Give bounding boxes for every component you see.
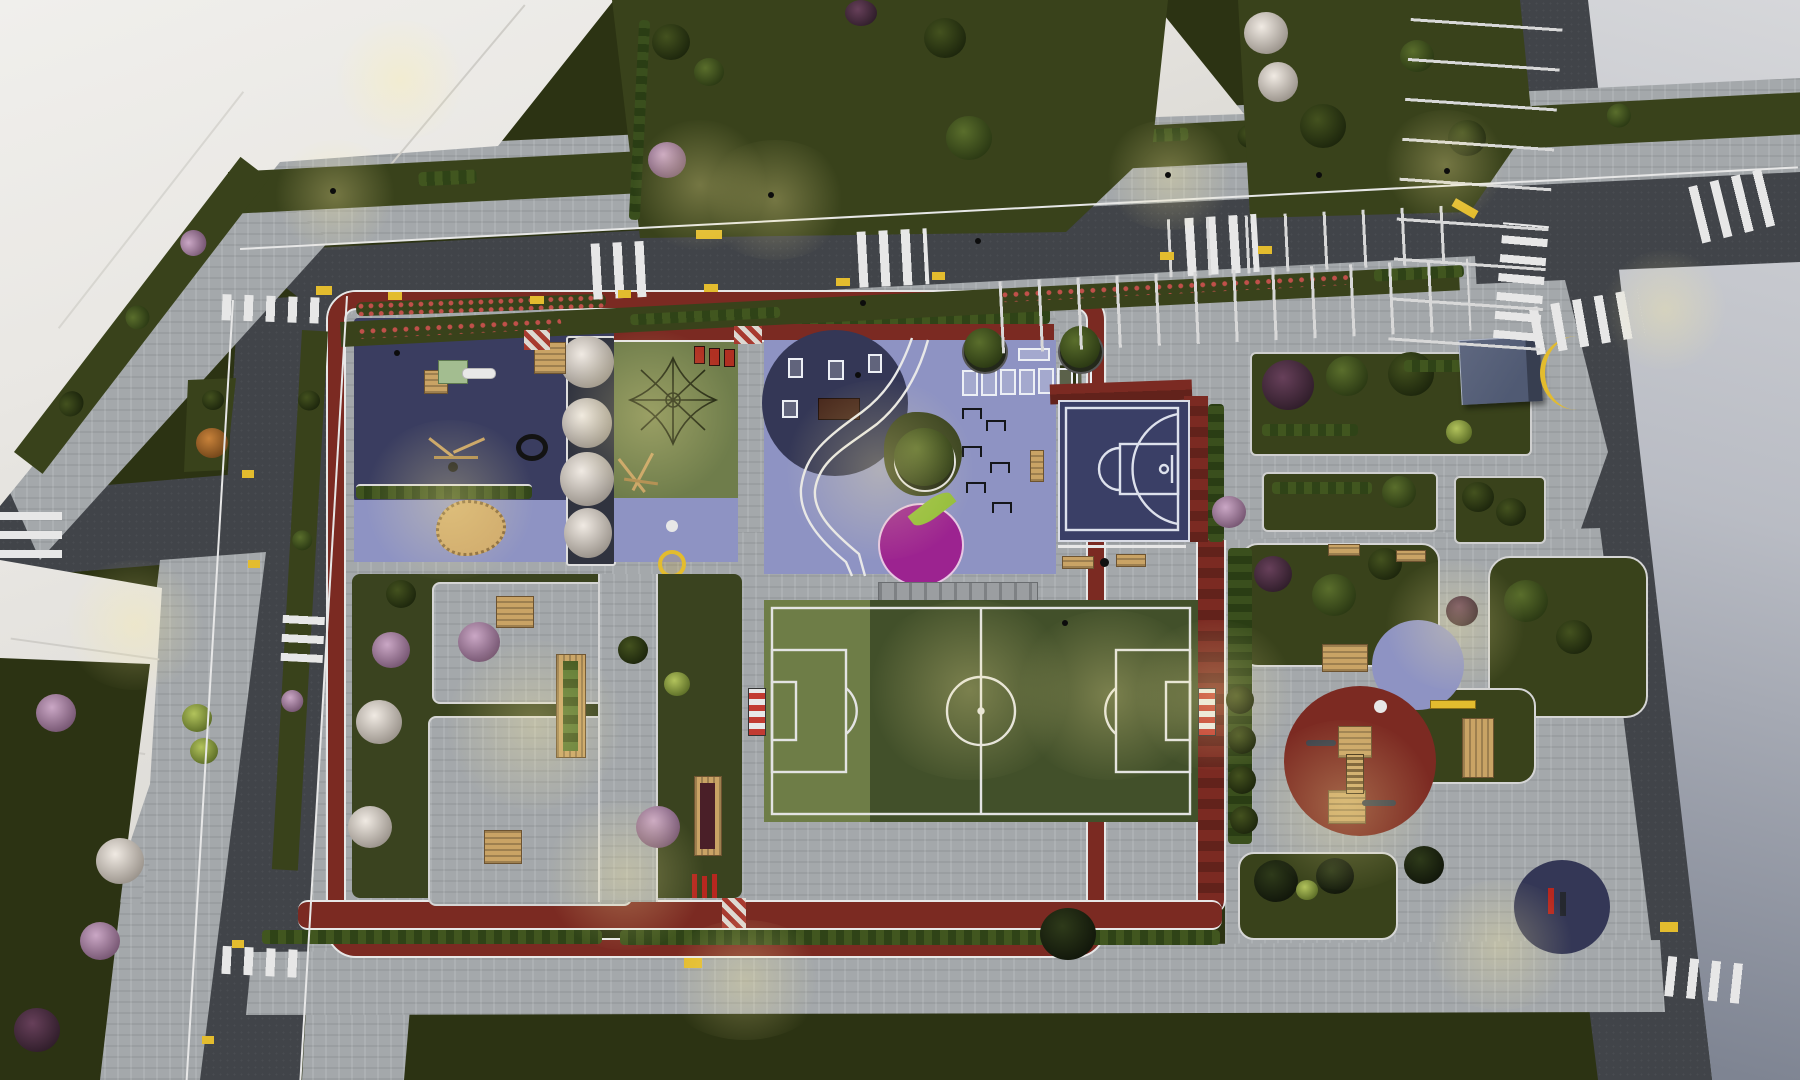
balance-beam [1430, 700, 1476, 709]
street-lamp [975, 238, 981, 244]
gym-platform [818, 398, 860, 420]
courtyard-tree [946, 116, 992, 160]
raised-planter-dark [694, 776, 722, 856]
play-ball [666, 520, 678, 532]
play-tower [1328, 790, 1366, 824]
street-lamp [1165, 172, 1171, 178]
lit-bush [1296, 880, 1318, 900]
blossom-tree [562, 398, 612, 448]
yellow-mark [1258, 246, 1272, 254]
blossom-tree [96, 838, 144, 884]
garden-tree [1504, 580, 1548, 622]
bed-tree [1496, 498, 1526, 526]
blossom-tree [1244, 12, 1288, 54]
purple-shrub [1254, 556, 1292, 592]
crosswalk [0, 502, 62, 558]
garden-path-east [598, 574, 658, 902]
court-south-line [1058, 545, 1186, 548]
ball-tree [1230, 806, 1258, 834]
pergola-table [1322, 644, 1368, 672]
basketball-half-court [1058, 400, 1190, 542]
soccer-field-light-strip [764, 600, 870, 822]
street-tree [964, 328, 1004, 368]
courtyard-tree [924, 18, 966, 58]
play-beam [1362, 800, 1396, 806]
yellow-mark [388, 292, 402, 300]
yellow-mark [1660, 922, 1678, 932]
picnic-table [496, 596, 534, 628]
rope-bridge [1346, 754, 1364, 794]
gym-machine [782, 400, 798, 418]
hurdle [962, 408, 982, 419]
wood-climber [614, 450, 662, 514]
track-crossing-mark [734, 326, 762, 344]
ball-tree [1228, 766, 1256, 794]
park-lamp [394, 350, 400, 356]
playground-hedge-strip [356, 484, 532, 499]
crosswalk [1664, 956, 1746, 1004]
courtyard-tree [694, 58, 724, 86]
bed-hedge [1262, 424, 1358, 436]
track-crossing-mark [722, 898, 746, 928]
swing-frame [426, 442, 484, 478]
street-lamp [330, 188, 336, 194]
crosswalk [221, 946, 306, 978]
yellow-mark [932, 272, 945, 280]
field-south-hedge [620, 930, 1220, 945]
garden-tree [1312, 574, 1356, 616]
ball-tree [1228, 726, 1256, 754]
hurdle [986, 420, 1006, 431]
dark-tree [1254, 860, 1298, 902]
yellow-mark [704, 284, 718, 292]
blossom-tree [560, 452, 614, 506]
crosswalk [281, 605, 326, 663]
yellow-mark [696, 230, 722, 239]
bed-tree [1462, 482, 1494, 512]
garden-tree [1556, 620, 1592, 654]
flowering-shrub [348, 806, 392, 848]
flowering-shrub [80, 922, 120, 960]
soccer-goal-west [748, 688, 766, 736]
blossom-tree [564, 508, 612, 558]
courtyard-tree [652, 24, 690, 60]
flowering-shrub [636, 806, 680, 848]
outdoor-gym-red [694, 344, 738, 368]
yellow-mark [684, 958, 702, 968]
aerial-park-render [0, 0, 1800, 1080]
ball-tree [1226, 686, 1254, 714]
bench [1116, 554, 1146, 567]
street-lamp [1444, 168, 1450, 174]
gym-machine [788, 358, 803, 378]
play-ball [1374, 700, 1387, 713]
courtyard-shrub [648, 142, 686, 178]
yellow-mark [836, 278, 850, 286]
yellow-mark [232, 940, 244, 948]
bed-hedge [1272, 482, 1372, 494]
bed-tree [1326, 356, 1368, 396]
purple-shrub [14, 1008, 60, 1052]
bench [1062, 556, 1094, 569]
tire-toy [516, 434, 548, 461]
park-lamp [855, 372, 861, 378]
park-lamp [1062, 620, 1068, 626]
hurdle [966, 482, 986, 493]
yellow-mark [316, 286, 332, 295]
shrub [618, 636, 648, 664]
dark-tree [1316, 858, 1354, 894]
crosswalk [857, 228, 930, 288]
bench [1030, 450, 1044, 482]
gym-machine [828, 360, 844, 380]
picnic-table [484, 830, 522, 864]
track-crossing-mark [524, 330, 550, 350]
courtyard-shrub [845, 0, 877, 26]
pergola-table [1462, 718, 1494, 778]
blossom-tree [1258, 62, 1298, 102]
yellow-mark [530, 296, 544, 304]
crosswalk [222, 294, 329, 324]
flowering-shrub [356, 700, 402, 744]
flowering-shrub [36, 694, 76, 732]
lawn-tree [1300, 104, 1346, 148]
bed-bush [1446, 420, 1472, 444]
parked-bike [1560, 892, 1566, 916]
parking-stalls-east [1388, 1, 1563, 351]
flowering-shrub [458, 622, 500, 662]
yellow-mark [248, 560, 260, 568]
verge-bush [202, 390, 224, 410]
purple-shrub [1446, 596, 1478, 626]
bench [1328, 544, 1360, 556]
street-lamp [1316, 172, 1322, 178]
bike-rack [690, 872, 720, 902]
yellow-mark [242, 470, 254, 478]
yellow-mark [1160, 252, 1174, 260]
hurdle [962, 446, 982, 457]
slide-unit [424, 360, 494, 396]
shrub [386, 580, 416, 608]
litter-bin [1100, 558, 1109, 567]
bench [1396, 550, 1426, 562]
island-tree [894, 428, 954, 486]
raised-planter [556, 654, 586, 758]
yellow-mark [202, 1036, 214, 1044]
flowering-shrub [372, 632, 410, 668]
flowering-shrub [1212, 496, 1246, 528]
play-beam [1306, 740, 1336, 746]
promenade-hedge-west [262, 930, 602, 944]
park-lamp [860, 300, 866, 306]
soccer-goal-east [1198, 688, 1216, 736]
parked-bike [1548, 888, 1554, 914]
yellow-mark [618, 290, 631, 298]
hurdle [990, 462, 1010, 473]
bed-tree [1382, 476, 1416, 508]
shrub [664, 672, 690, 696]
dark-tree [1040, 908, 1096, 960]
blossom-tree [560, 336, 614, 388]
bed-shrub [1262, 360, 1314, 410]
bed-tree [1388, 352, 1434, 396]
dark-tree [1404, 846, 1444, 884]
hurdle [992, 502, 1012, 513]
street-lamp [768, 192, 774, 198]
gym-machine [868, 354, 882, 373]
